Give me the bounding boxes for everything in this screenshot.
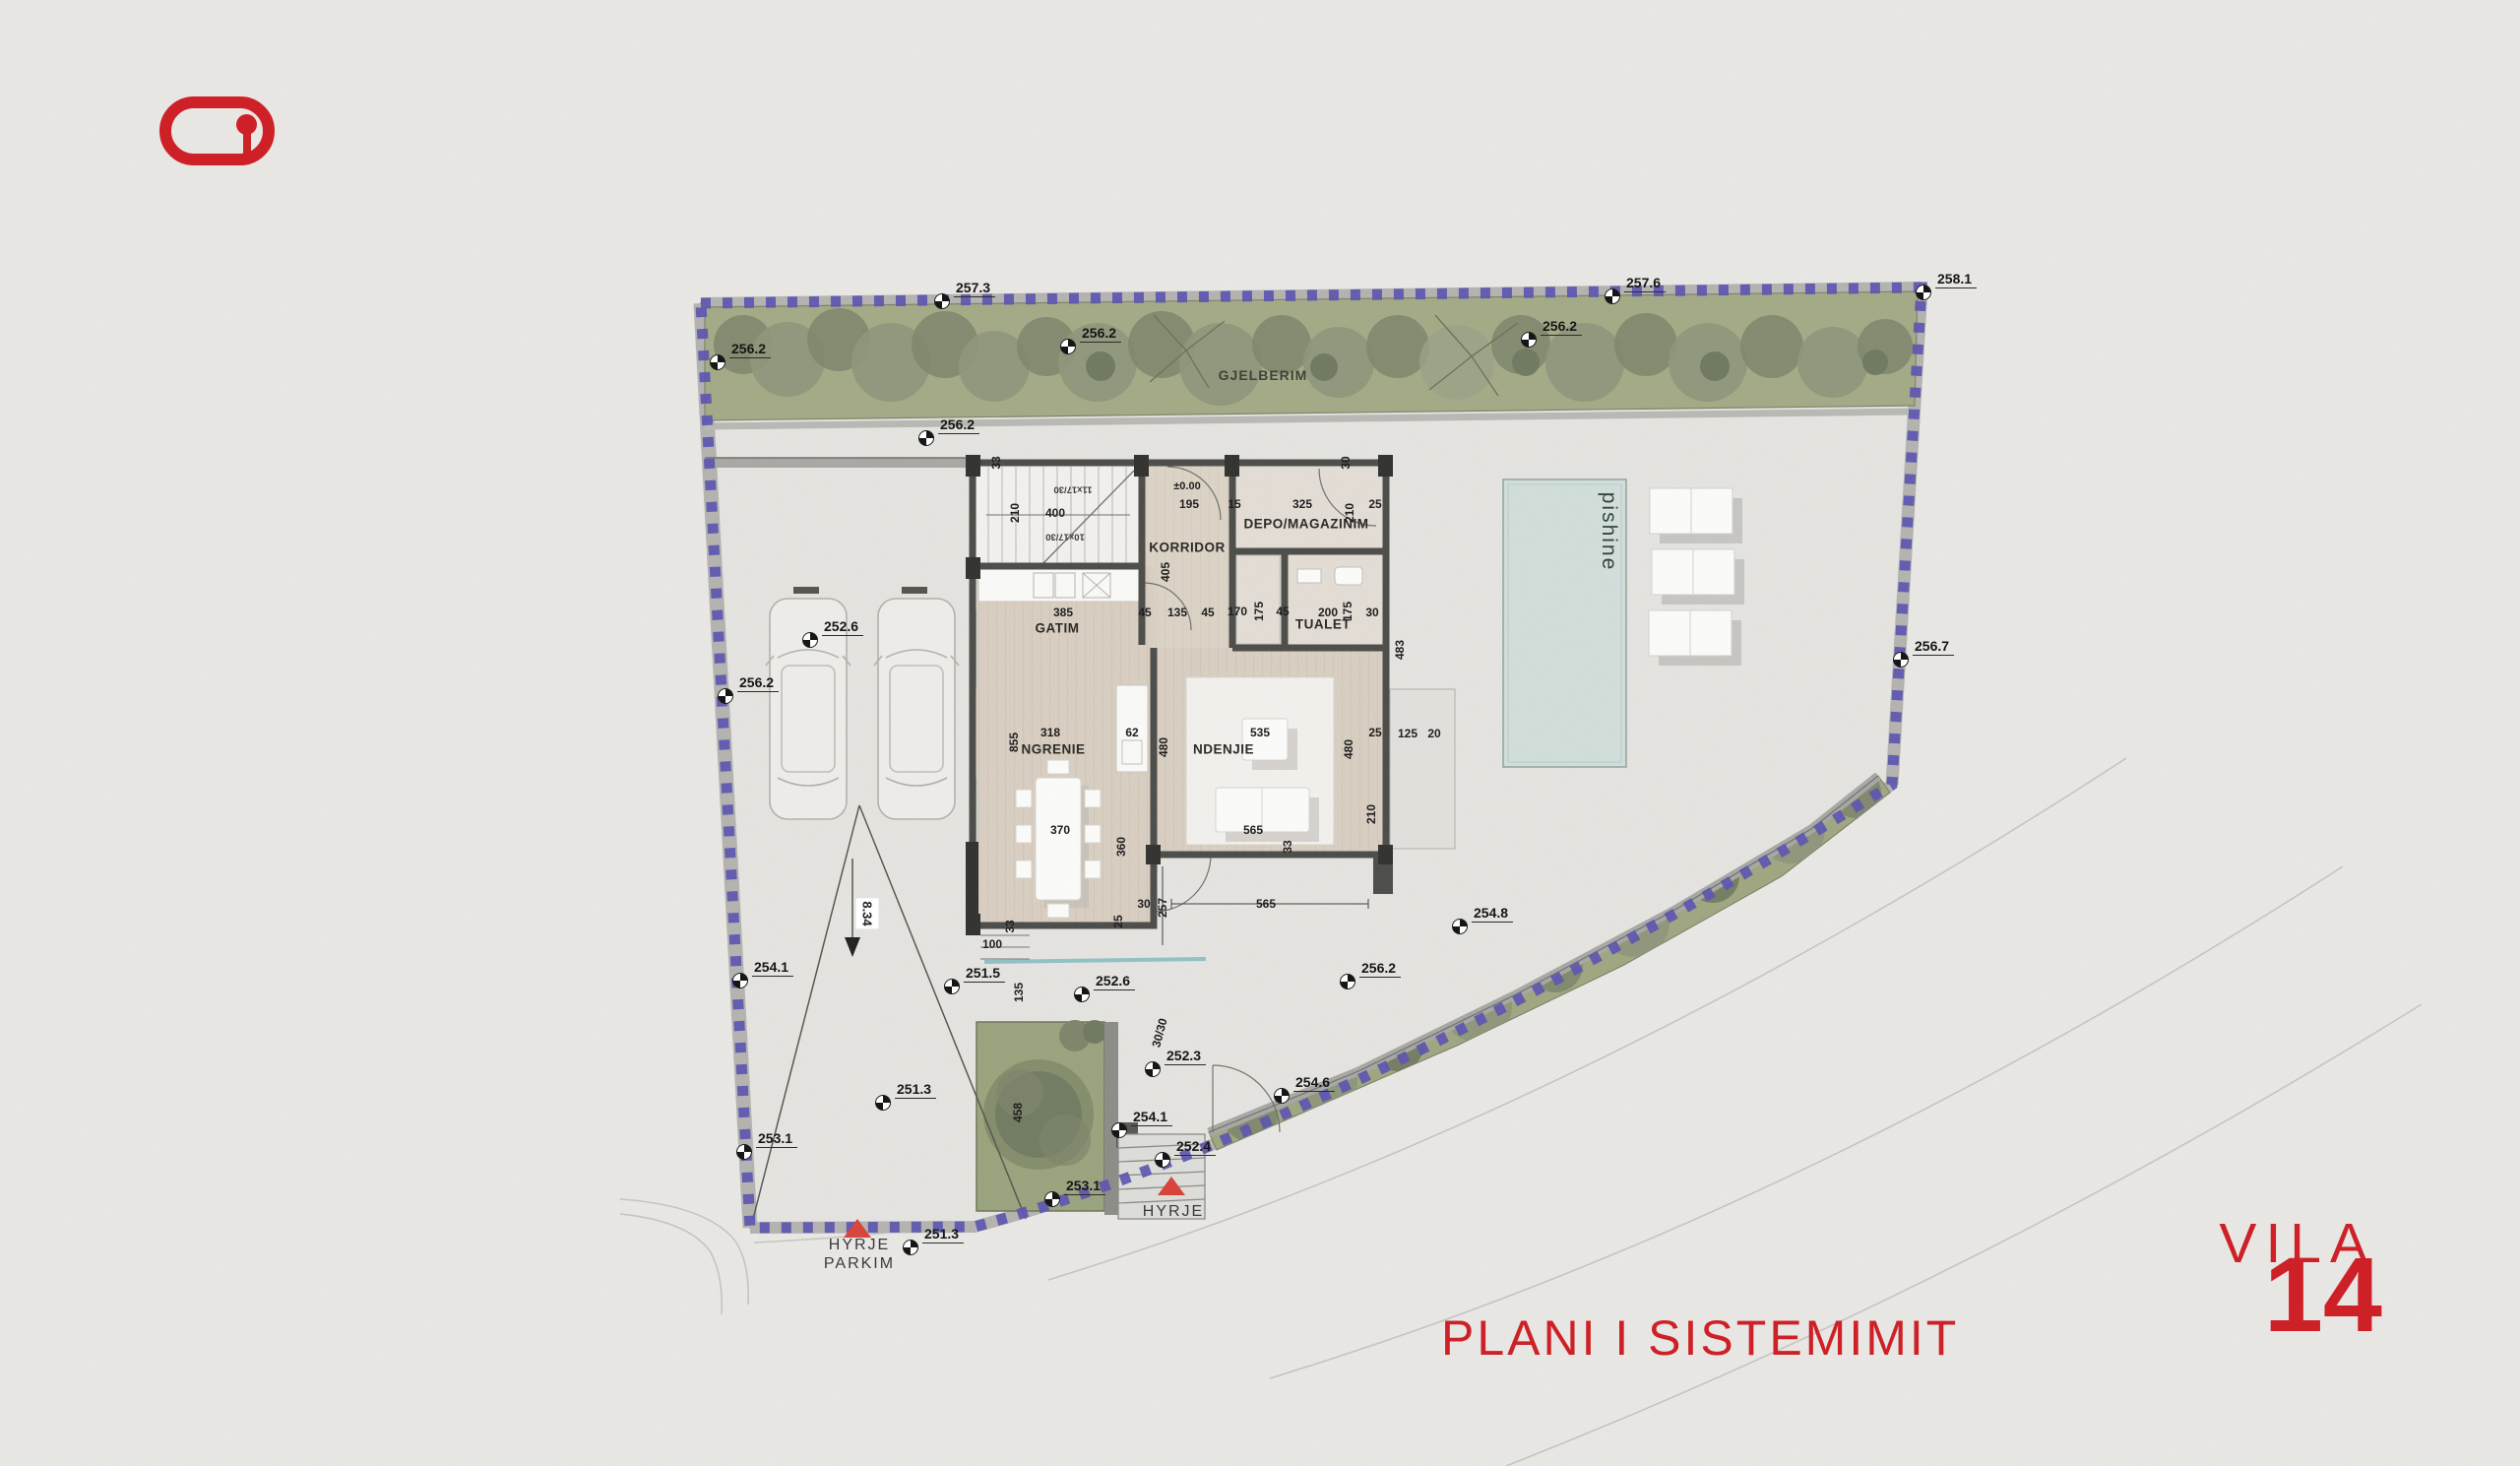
dimension-label: 62 bbox=[1125, 726, 1138, 739]
plan-title: PLANI I SISTEMIMIT bbox=[1441, 1309, 1959, 1367]
dimension-label: 135 bbox=[1012, 983, 1026, 1002]
dimension-label: 480 bbox=[1157, 737, 1170, 757]
elevation-value: 253.1 bbox=[1064, 1178, 1105, 1195]
dimension-label: 480 bbox=[1342, 739, 1355, 759]
dimension-label: 33 bbox=[1281, 840, 1294, 853]
survey-point-icon bbox=[1274, 1088, 1290, 1104]
dimension-label: 360 bbox=[1114, 837, 1128, 857]
survey-point-icon bbox=[903, 1240, 918, 1255]
elevation-value: 252.4 bbox=[1174, 1138, 1216, 1156]
greenery-label: GJELBERIM bbox=[1219, 367, 1308, 383]
elevation-value: 256.2 bbox=[1080, 325, 1121, 343]
dimension-label: 25 bbox=[1368, 726, 1381, 739]
elevation-value: 254.6 bbox=[1293, 1074, 1335, 1092]
elevation-value: 256.2 bbox=[729, 341, 771, 358]
survey-point-icon bbox=[1521, 332, 1537, 348]
survey-point-icon bbox=[710, 354, 725, 370]
survey-point-icon bbox=[1916, 285, 1931, 300]
entry-triangle-icon bbox=[1158, 1177, 1185, 1195]
developer-logo bbox=[159, 96, 275, 165]
dimension-label: 458 bbox=[1011, 1103, 1025, 1122]
elevation-value: 251.3 bbox=[922, 1226, 964, 1243]
dimension-label: 483 bbox=[1393, 640, 1407, 660]
dimension-label: 30 bbox=[1365, 606, 1378, 619]
survey-point-icon bbox=[1111, 1122, 1127, 1138]
dimension-label: 33 bbox=[1003, 920, 1017, 932]
dimension-label: 855 bbox=[1007, 733, 1021, 752]
elevation-value: 254.1 bbox=[1131, 1109, 1172, 1126]
elevation-value: 256.2 bbox=[1541, 318, 1582, 336]
dimension-label: 400 bbox=[1045, 506, 1065, 520]
elevation-value: 256.2 bbox=[938, 416, 979, 434]
survey-point-icon bbox=[802, 632, 818, 648]
dimension-label: 565 bbox=[1243, 823, 1263, 837]
elevation-value: 258.1 bbox=[1935, 271, 1977, 288]
survey-point-icon bbox=[944, 979, 960, 994]
survey-point-icon bbox=[736, 1144, 752, 1160]
parking-entry-triangle-icon bbox=[844, 1219, 871, 1238]
dimension-label: 20 bbox=[1427, 727, 1440, 740]
dimension-label: 195 bbox=[1179, 497, 1199, 511]
dimension-label: 45 bbox=[1201, 606, 1214, 619]
survey-point-icon bbox=[918, 430, 934, 446]
dimension-label: 210 bbox=[1008, 503, 1022, 523]
dimension-label: 45 bbox=[1276, 605, 1289, 618]
parking-entry-label: HYRJE PARKIM bbox=[824, 1236, 895, 1273]
elevation-value: 252.3 bbox=[1165, 1048, 1206, 1065]
dimension-label: 385 bbox=[1053, 606, 1073, 619]
elevation-value: 254.8 bbox=[1472, 905, 1513, 923]
elevation-value: 257.6 bbox=[1624, 275, 1666, 292]
survey-point-icon bbox=[1155, 1152, 1170, 1168]
room-label: NDENJIE bbox=[1193, 742, 1254, 757]
dimension-label: 135 bbox=[1167, 606, 1187, 619]
survey-point-icon bbox=[934, 293, 950, 309]
dimension-label: 210 bbox=[1364, 804, 1378, 824]
elevation-value: 251.5 bbox=[964, 965, 1005, 983]
dimension-label: 33 bbox=[989, 456, 1003, 469]
survey-point-icon bbox=[1605, 288, 1620, 304]
survey-point-icon bbox=[1452, 919, 1468, 934]
dimension-label: 30 bbox=[1137, 897, 1150, 911]
survey-point-icon bbox=[1044, 1191, 1060, 1207]
elevation-value: 256.7 bbox=[1913, 638, 1954, 656]
elevation-value: 254.1 bbox=[752, 959, 793, 977]
site-plan-sheet: KORRIDORDEPO/MAGAZINIMGATIMTUALETNGRENIE… bbox=[0, 0, 2520, 1466]
survey-point-icon bbox=[732, 973, 748, 988]
dimension-label: 175 bbox=[1341, 602, 1354, 621]
stair-run-lower: 10x17/30 bbox=[1045, 532, 1085, 542]
room-label: NGRENIE bbox=[1021, 742, 1085, 757]
ramp-slope-label: 8.34 bbox=[856, 898, 879, 928]
dimension-label: 257 bbox=[1156, 898, 1169, 918]
dimension-label: 125 bbox=[1398, 727, 1417, 740]
survey-point-icon bbox=[718, 688, 733, 704]
dimension-label: 175 bbox=[1252, 602, 1266, 621]
elevation-value: 257.3 bbox=[954, 280, 995, 297]
dimension-label: 25 bbox=[1368, 497, 1381, 511]
parking-entry-line1: HYRJE bbox=[824, 1236, 895, 1254]
floor-level-label: ±0.00 bbox=[1173, 480, 1200, 492]
dimension-label: 25 bbox=[1111, 915, 1125, 927]
dimension-label: 370 bbox=[1050, 823, 1070, 837]
dimension-label: 170 bbox=[1228, 605, 1247, 618]
survey-point-icon bbox=[1074, 987, 1090, 1002]
dimension-label: 535 bbox=[1250, 726, 1270, 739]
elevation-value: 251.3 bbox=[895, 1081, 936, 1099]
parking-entry-line2: PARKIM bbox=[824, 1254, 895, 1273]
survey-point-icon bbox=[1145, 1061, 1161, 1077]
room-label: KORRIDOR bbox=[1149, 541, 1226, 555]
dimension-label: 325 bbox=[1292, 497, 1312, 511]
villa-number: 14 bbox=[2264, 1239, 2382, 1350]
elevation-value: 256.2 bbox=[737, 674, 779, 692]
survey-point-icon bbox=[1340, 974, 1355, 989]
dimension-label: 210 bbox=[1343, 503, 1356, 523]
entry-label: HYRJE bbox=[1143, 1203, 1204, 1221]
elevation-value: 252.6 bbox=[1094, 973, 1135, 990]
room-label: GATIM bbox=[1036, 621, 1080, 636]
dimension-label: 565 bbox=[1256, 897, 1276, 911]
elevation-value: 256.2 bbox=[1359, 960, 1401, 978]
dimension-label: 15 bbox=[1228, 497, 1240, 511]
dimension-label: 405 bbox=[1159, 562, 1172, 582]
dimension-label: 45 bbox=[1138, 606, 1151, 619]
elevation-value: 253.1 bbox=[756, 1130, 797, 1148]
dimension-label: 200 bbox=[1318, 606, 1338, 619]
pool-label: pishine bbox=[1597, 492, 1620, 572]
keyhole-stem-icon bbox=[243, 128, 251, 155]
dimension-label: 30 bbox=[1339, 456, 1353, 469]
dimension-label: 318 bbox=[1040, 726, 1060, 739]
stair-run-upper: 11x17/30 bbox=[1053, 484, 1092, 495]
dimension-label: 100 bbox=[982, 937, 1002, 951]
survey-point-icon bbox=[1060, 339, 1076, 354]
survey-point-icon bbox=[875, 1095, 891, 1111]
survey-point-icon bbox=[1893, 652, 1909, 668]
elevation-value: 252.6 bbox=[822, 618, 863, 636]
